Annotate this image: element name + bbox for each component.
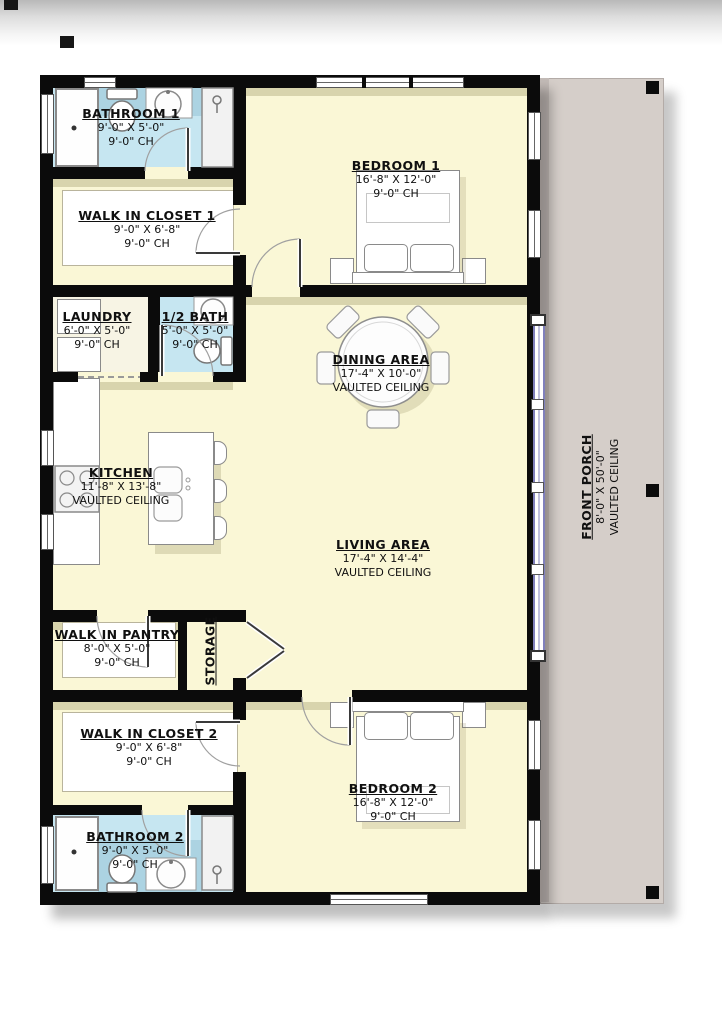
bed-1-pillow — [364, 244, 408, 272]
page-background: BATHROOM 1 9'-0" X 5'-0" 9'-0" CH WALK I… — [0, 0, 722, 1009]
room-name: BEDROOM 2 — [349, 781, 437, 796]
window — [528, 112, 541, 160]
wall — [40, 285, 246, 297]
room-ceiling: VAULTED CEILING — [335, 566, 432, 580]
room-ceiling: 9'-0" CH — [82, 135, 180, 149]
wall — [188, 805, 246, 815]
porch-post — [646, 886, 659, 899]
wall — [40, 610, 97, 622]
wall — [246, 285, 252, 297]
room-name: FRONT PORCH — [579, 434, 594, 540]
wall — [40, 88, 53, 892]
room-ceiling: 9'-0" CH — [62, 338, 131, 352]
wall — [233, 690, 246, 720]
room-label-bathroom-1: BATHROOM 1 9'-0" X 5'-0" 9'-0" CH — [82, 106, 180, 149]
wall — [233, 678, 246, 690]
wall — [40, 805, 142, 815]
room-dimensions: 8'-0" X 5'-0" — [55, 642, 180, 656]
room-ceiling: VAULTED CEILING — [332, 381, 429, 395]
wall — [40, 167, 145, 179]
island-stool — [214, 441, 227, 465]
room-ceiling: 9'-0" CH — [55, 656, 180, 670]
room-name: STORAGE — [203, 616, 218, 685]
room-dimensions: 9'-0" X 6'-8" — [78, 223, 215, 237]
room-dimensions: 6'-0" X 5'-0" — [62, 324, 131, 338]
room-label-pantry: WALK IN PANTRY 8'-0" X 5'-0" 9'-0" CH — [55, 627, 180, 670]
wall — [352, 690, 540, 702]
window — [41, 826, 54, 884]
room-name: WALK IN PANTRY — [55, 627, 180, 642]
window — [41, 94, 54, 154]
room-ceiling: 9'-0" CH — [80, 755, 217, 769]
room-dimensions: 17'-4" X 10'-0" — [332, 367, 429, 381]
room-dimensions: 9'-0" X 5'-0" — [86, 844, 184, 858]
window — [41, 430, 54, 466]
room-dimensions: 5'-0" X 5'-0" — [162, 324, 229, 338]
bed-1-pillow — [410, 244, 454, 272]
porch-post — [646, 484, 659, 497]
wall — [233, 772, 246, 892]
room-name: BATHROOM 1 — [82, 106, 180, 121]
bed-2-pillow — [364, 712, 408, 740]
window — [528, 820, 541, 870]
room-ceiling: VAULTED CEILING — [608, 434, 622, 540]
wall — [148, 297, 160, 372]
nightstand — [330, 702, 354, 728]
wall — [140, 372, 158, 382]
room-dimensions: 17'-4" X 14'-4" — [335, 552, 432, 566]
wall — [233, 88, 246, 205]
room-label-laundry: LAUNDRY 6'-0" X 5'-0" 9'-0" CH — [62, 309, 131, 352]
wall — [188, 167, 246, 179]
wall — [148, 610, 246, 622]
bed-1-headboard — [352, 272, 464, 284]
wall-shadow — [53, 179, 233, 187]
room-name: KITCHEN — [73, 465, 170, 480]
room-label-closet-2: WALK IN CLOSET 2 9'-0" X 6'-8" 9'-0" CH — [80, 726, 217, 769]
glass-wall-mullion — [531, 482, 544, 493]
wall — [40, 372, 78, 382]
window — [330, 894, 428, 905]
room-label-front-porch: FRONT PORCH 8'-0" X 50'-0" VAULTED CEILI… — [579, 434, 622, 540]
wall — [246, 690, 302, 702]
window — [316, 77, 464, 88]
room-ceiling: 9'-0" CH — [86, 858, 184, 872]
room-name: LIVING AREA — [335, 537, 432, 552]
room-dimensions: 9'-0" X 6'-8" — [80, 741, 217, 755]
room-label-bedroom-2: BEDROOM 2 16'-8" X 12'-0" 9'-0" CH — [349, 781, 437, 824]
room-name: BATHROOM 2 — [86, 829, 184, 844]
window-mullion — [362, 77, 366, 88]
nightstand — [462, 258, 486, 284]
bed-2-pillow — [410, 712, 454, 740]
room-label-half-bath: 1/2 BATH 5'-0" X 5'-0" 9'-0" CH — [162, 309, 229, 352]
wall — [40, 690, 246, 702]
room-name: WALK IN CLOSET 1 — [78, 208, 215, 223]
room-ceiling: 9'-0" CH — [349, 810, 437, 824]
room-name: 1/2 BATH — [162, 309, 229, 324]
nightstand — [330, 258, 354, 284]
window — [528, 210, 541, 258]
window — [528, 720, 541, 770]
window — [84, 77, 116, 88]
room-label-storage: STORAGE — [203, 616, 218, 685]
room-name: BEDROOM 1 — [352, 158, 440, 173]
wall — [300, 285, 540, 297]
island-stool — [214, 479, 227, 503]
porch-post — [646, 81, 659, 94]
room-label-dining-area: DINING AREA 17'-4" X 10'-0" VAULTED CEIL… — [332, 352, 429, 395]
glass-wall-mullion — [531, 564, 544, 575]
room-dimensions: 16'-8" X 12'-0" — [352, 173, 440, 187]
room-label-closet-1: WALK IN CLOSET 1 9'-0" X 6'-8" 9'-0" CH — [78, 208, 215, 251]
room-dimensions: 11'-8" X 13'-8" — [73, 480, 170, 494]
wall — [233, 255, 246, 372]
window — [41, 514, 54, 550]
glass-wall-mullion — [531, 399, 544, 410]
room-label-kitchen: KITCHEN 11'-8" X 13'-8" VAULTED CEILING — [73, 465, 170, 508]
room-ceiling: VAULTED CEILING — [73, 494, 170, 508]
room-name: WALK IN CLOSET 2 — [80, 726, 217, 741]
floor-plan: BATHROOM 1 9'-0" X 5'-0" 9'-0" CH WALK I… — [0, 0, 722, 1009]
island-stool — [214, 516, 227, 540]
wall-shadow — [246, 297, 527, 305]
wall-shadow — [246, 88, 527, 96]
room-dimensions: 8'-0" X 50'-0" — [594, 434, 608, 540]
room-ceiling: 9'-0" CH — [352, 187, 440, 201]
wall-shadow — [53, 702, 233, 710]
wall — [233, 610, 246, 622]
room-ceiling: 9'-0" CH — [78, 237, 215, 251]
wall — [213, 372, 246, 382]
wall — [40, 892, 540, 905]
window-mullion — [409, 77, 413, 88]
glass-wall-end — [530, 314, 546, 326]
room-dimensions: 9'-0" X 5'-0" — [82, 121, 180, 135]
glass-wall-end — [530, 650, 546, 662]
room-label-bedroom-1: BEDROOM 1 16'-8" X 12'-0" 9'-0" CH — [352, 158, 440, 201]
room-label-bathroom-2: BATHROOM 2 9'-0" X 5'-0" 9'-0" CH — [86, 829, 184, 872]
room-name: DINING AREA — [332, 352, 429, 367]
room-label-living-area: LIVING AREA 17'-4" X 14'-4" VAULTED CEIL… — [335, 537, 432, 580]
room-name: LAUNDRY — [62, 309, 131, 324]
nightstand — [462, 702, 486, 728]
room-dimensions: 16'-8" X 12'-0" — [349, 796, 437, 810]
room-ceiling: 9'-0" CH — [162, 338, 229, 352]
